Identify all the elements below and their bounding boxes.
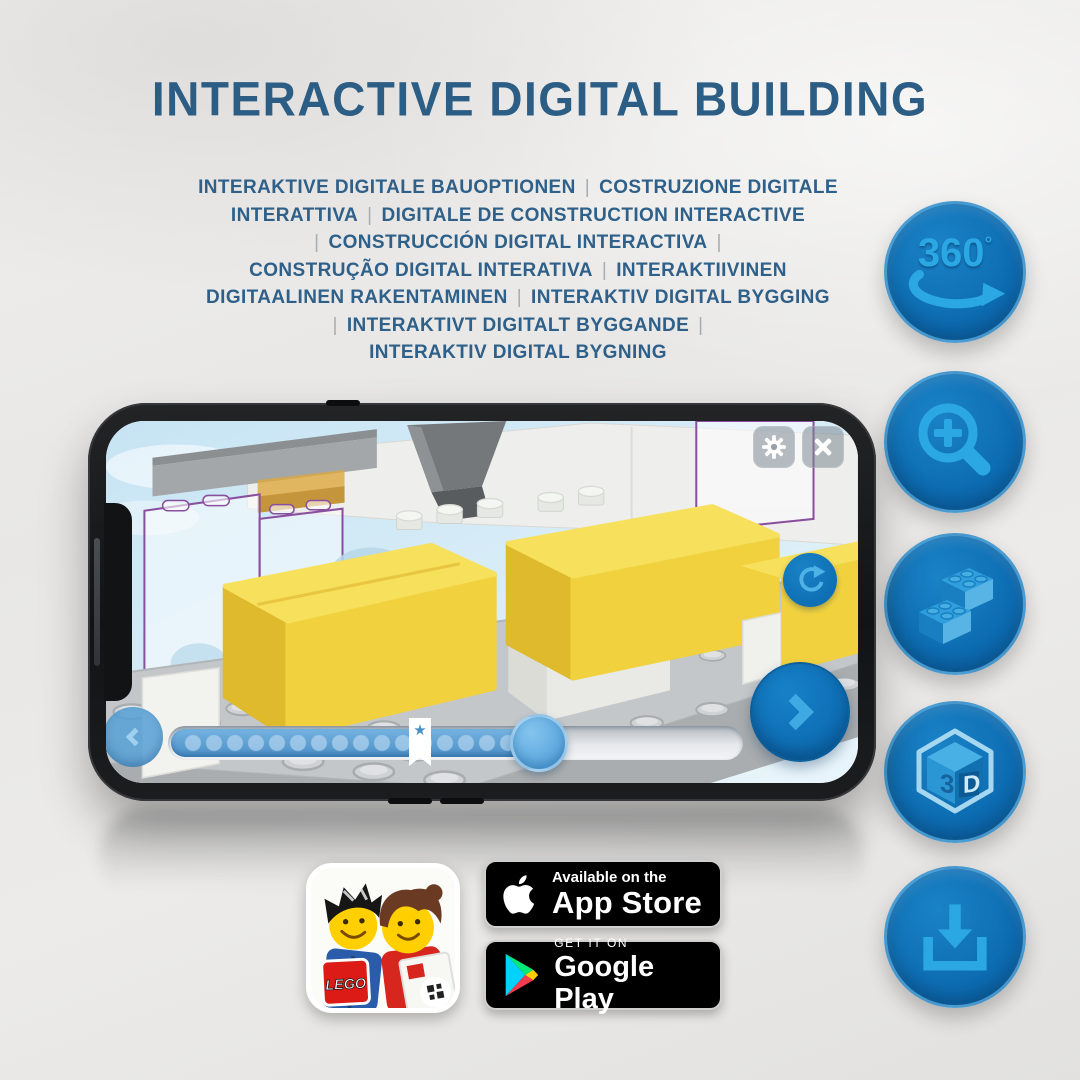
feature-bricks-badge [884,533,1026,675]
google-play-tagline: GET IT ON [554,936,708,951]
feature-360-badge: 360° [884,201,1026,343]
progress-slider-thumb[interactable] [510,714,568,772]
phone: ★ [88,403,876,801]
app-store-name: App Store [552,886,702,919]
phone-notch [104,503,132,701]
apple-icon [502,871,540,917]
download-icon [909,891,1001,983]
phone-screen: ★ [106,421,858,783]
app-store-badge[interactable]: Available on the App Store [484,860,722,928]
google-play-badge[interactable]: GET IT ON Google Play [484,940,722,1010]
close-button[interactable] [802,426,844,468]
progress-step-dots [183,733,523,753]
phone-earpiece [94,538,100,666]
lego-app-art: LEGO [311,868,457,1010]
page-title: INTERACTIVE DIGITAL BUILDING [0,71,1080,127]
chevron-right-icon [773,685,827,739]
phone-reflection [100,808,864,904]
svg-text:D: D [963,770,980,799]
feature-3d-badge: 3 D [884,701,1026,843]
next-step-button[interactable] [750,662,850,762]
phone-power-button [326,400,360,406]
lego-bricks-icon [907,556,1003,652]
google-play-icon [500,949,542,1001]
lego-logo: LEGO [321,959,369,1005]
close-icon [809,433,837,461]
phone-volume-down-button [440,798,484,804]
3d-cube-icon: 3 D [907,724,1003,820]
rotate-icon [792,562,828,598]
chevron-left-icon [118,722,148,752]
feature-zoom-badge [884,371,1026,513]
rotate-view-button[interactable] [783,553,837,607]
build-progress-bar[interactable] [168,726,743,760]
360-arrow-icon [903,269,1007,311]
phone-volume-up-button [388,798,432,804]
lego-app-icon[interactable]: LEGO [306,863,460,1013]
360-rotation-icon: 360° [918,233,992,273]
svg-text:3: 3 [940,768,954,800]
settings-button[interactable] [753,426,795,468]
zoom-in-icon [909,396,1001,488]
app-store-tagline: Available on the [552,869,702,886]
gear-icon [759,432,789,462]
svg-text:LEGO: LEGO [325,976,367,994]
subtitle-block: INTERAKTIVE DIGITALE BAUOPTIONEN|COSTRUZ… [0,174,1036,367]
progress-fill [171,729,543,757]
google-play-name: Google Play [554,951,708,1015]
feature-download-badge [884,866,1026,1008]
